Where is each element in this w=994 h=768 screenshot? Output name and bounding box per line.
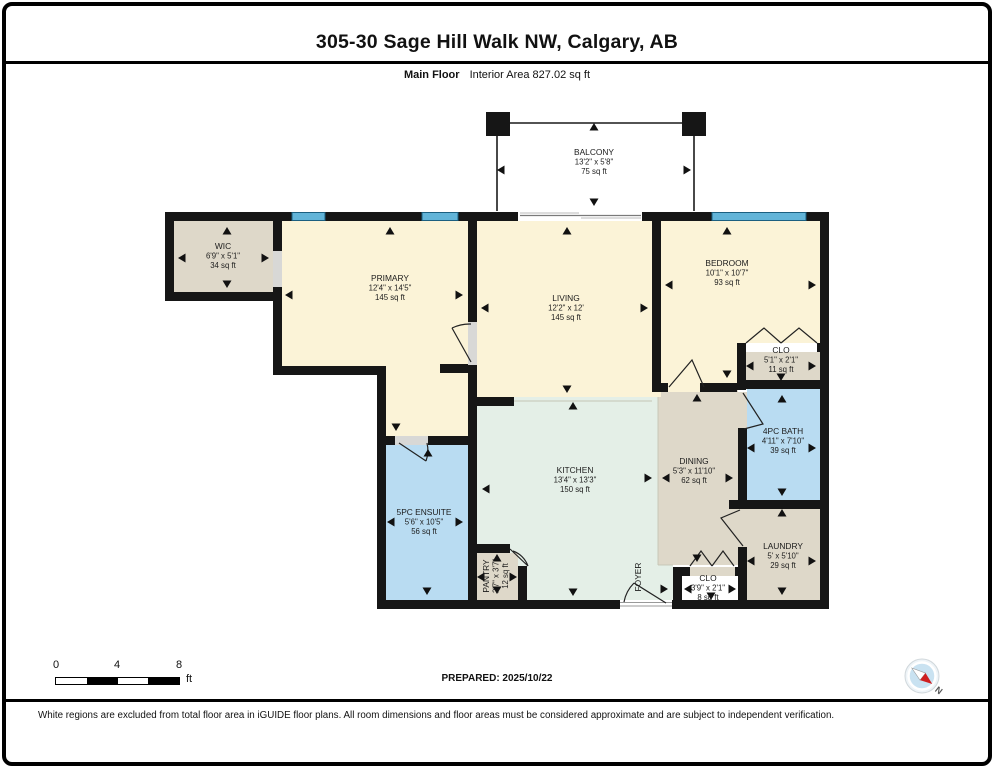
wall	[273, 301, 282, 375]
room-floor	[661, 221, 737, 383]
wall	[737, 380, 829, 389]
door-sill	[273, 251, 282, 287]
wall	[273, 287, 282, 301]
disclaimer-text: White regions are excluded from total fl…	[38, 710, 834, 721]
window	[422, 213, 458, 221]
room-label: CLO3'9" x 2'1"8 sq ft	[691, 573, 725, 602]
window	[712, 213, 806, 221]
room-label: PANTRY2'7" x 3'7"12 sq ft	[481, 559, 510, 593]
room-floor	[386, 366, 468, 445]
window	[292, 213, 325, 221]
wall	[700, 383, 737, 392]
compass-icon: N	[895, 650, 957, 706]
prepared-date: PREPARED: 2025/10/22	[0, 673, 994, 684]
wall	[673, 567, 690, 576]
room-floor	[737, 221, 820, 343]
dimension-arrow-up	[590, 123, 599, 131]
wall	[672, 600, 829, 609]
wall	[682, 112, 706, 136]
wall	[486, 112, 510, 136]
wall	[477, 397, 514, 406]
wall	[729, 500, 829, 509]
wall	[652, 221, 661, 383]
wall	[377, 436, 386, 609]
wall	[468, 365, 477, 609]
room-label: FOYER	[633, 563, 643, 592]
wall	[273, 366, 386, 375]
wall	[273, 221, 282, 251]
room-label: LIVING12'2" x 12'145 sq ft	[548, 293, 584, 322]
wall	[820, 212, 829, 609]
wall	[165, 212, 174, 301]
wall	[165, 292, 282, 301]
wall	[468, 544, 510, 553]
wall	[817, 343, 829, 352]
dimension-arrow-left	[497, 166, 505, 175]
wall	[377, 600, 620, 609]
wall	[468, 221, 477, 322]
floorplan-page: { "header": { "title": "305-30 Sage Hill…	[0, 0, 994, 768]
wall	[518, 566, 527, 609]
scale-tick-4: 4	[111, 659, 123, 671]
room-label: CLO5'1" x 2'1"11 sq ft	[764, 345, 798, 374]
dimension-arrow-down	[590, 199, 599, 207]
room-floor	[668, 383, 700, 392]
wall	[377, 366, 386, 445]
wall	[738, 428, 747, 500]
dimension-arrow-right	[729, 585, 737, 594]
dimension-arrow-right	[684, 166, 692, 175]
room-floor	[658, 565, 673, 600]
wall	[738, 547, 747, 609]
scale-tick-8: 8	[173, 659, 185, 671]
floorplan-svg: BALCONY13'2" x 5'8"75 sq ftWIC6'9" x 5'1…	[0, 0, 994, 768]
wall	[652, 383, 668, 392]
room-label: BALCONY13'2" x 5'8"75 sq ft	[574, 147, 614, 176]
footer-divider	[6, 699, 988, 702]
scale-tick-0: 0	[50, 659, 62, 671]
wall	[735, 567, 747, 576]
wall	[440, 364, 477, 373]
